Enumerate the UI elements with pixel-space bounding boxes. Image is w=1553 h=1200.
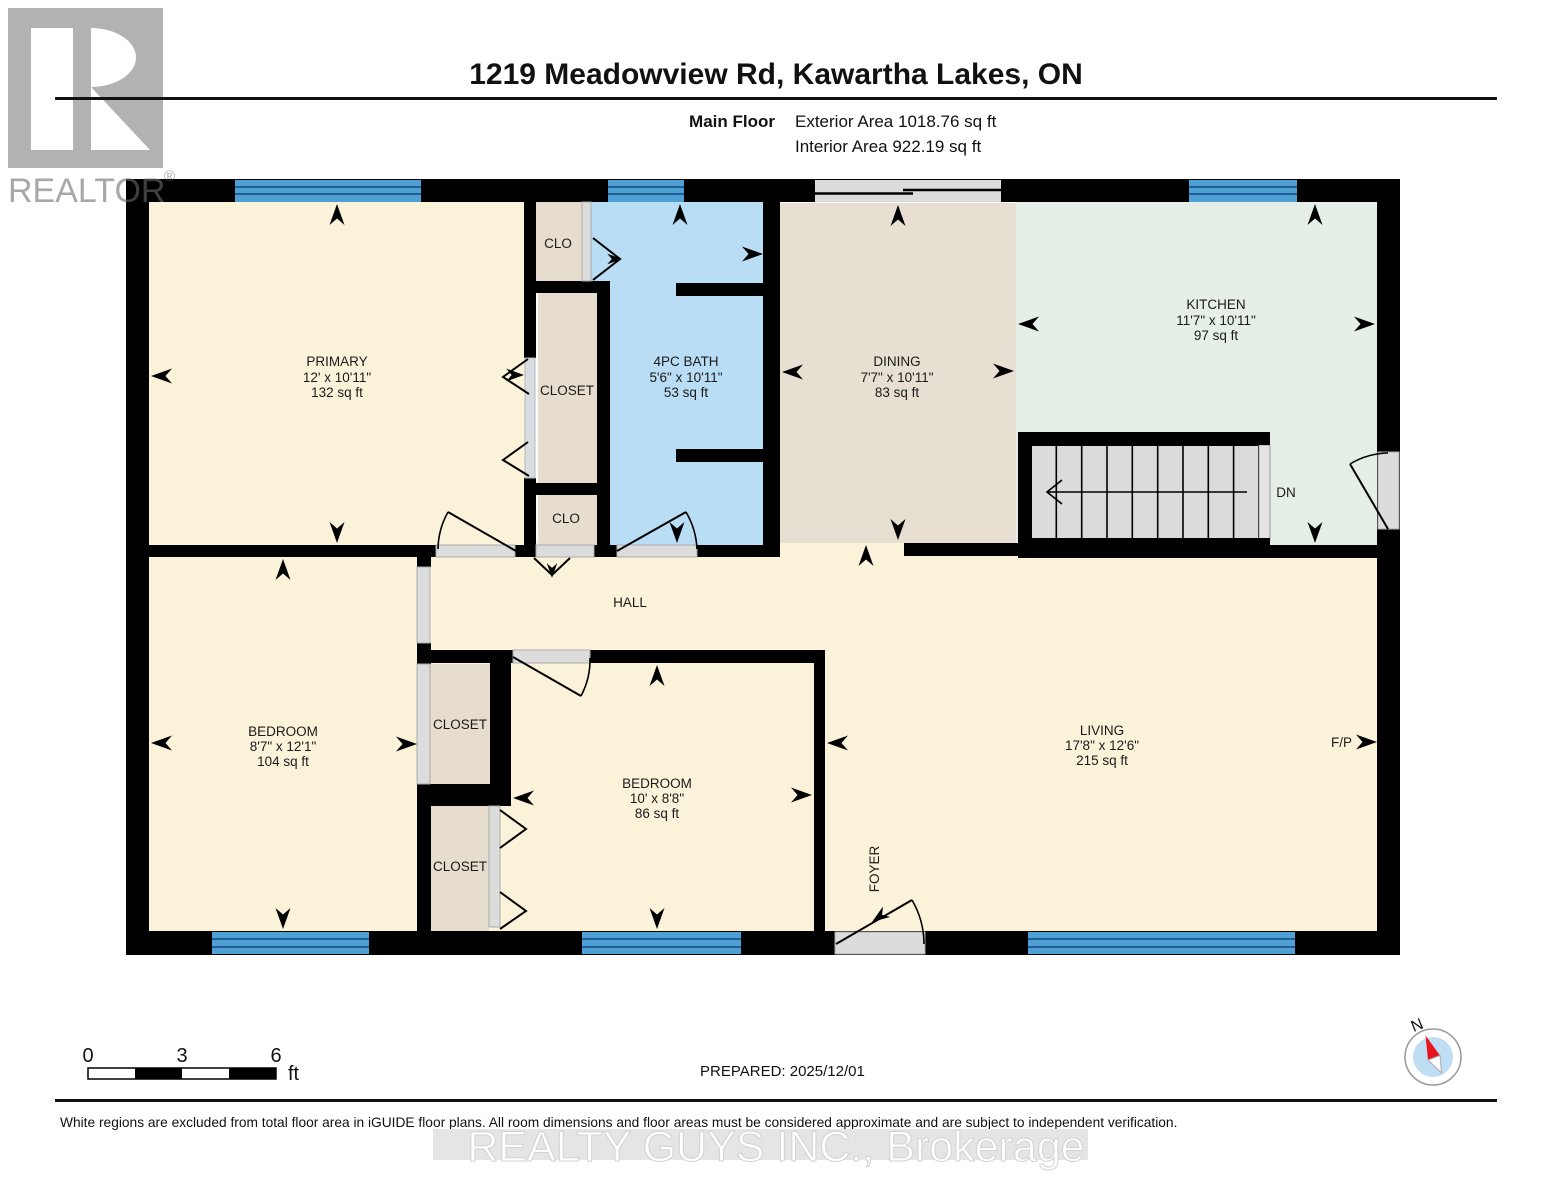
svg-text:86 sq ft: 86 sq ft [635,806,680,821]
svg-text:DINING: DINING [873,354,920,369]
svg-text:KITCHEN: KITCHEN [1186,297,1245,312]
svg-text:BEDROOM: BEDROOM [248,724,318,739]
svg-text:1219 Meadowview Rd, Kawartha L: 1219 Meadowview Rd, Kawartha Lakes, ON [469,58,1083,91]
svg-text:ft: ft [288,1063,300,1085]
svg-text:10' x 8'8": 10' x 8'8" [630,791,684,806]
svg-text:REALTOR: REALTOR [8,172,165,210]
svg-text:CLOSET: CLOSET [433,717,487,732]
svg-text:Main Floor: Main Floor [689,112,775,131]
svg-text:53 sq ft: 53 sq ft [664,385,709,400]
svg-text:215 sq ft: 215 sq ft [1076,753,1128,768]
svg-text:104 sq ft: 104 sq ft [257,754,309,769]
svg-text:LIVING: LIVING [1080,723,1124,738]
svg-text:®: ® [164,168,175,185]
svg-text:REALTY GUYS INC., Brokerage: REALTY GUYS INC., Brokerage [467,1123,1084,1171]
svg-text:132 sq ft: 132 sq ft [311,385,363,400]
svg-text:CLOSET: CLOSET [433,859,487,874]
svg-text:Interior Area 922.19 sq ft: Interior Area 922.19 sq ft [795,137,981,156]
svg-text:5'6" x 10'11": 5'6" x 10'11" [649,370,722,385]
svg-text:FOYER: FOYER [867,846,882,893]
svg-text:3: 3 [176,1045,187,1067]
svg-text:0: 0 [82,1045,93,1067]
svg-text:HALL: HALL [613,595,647,610]
svg-text:F/P: F/P [1331,735,1352,750]
svg-text:17'8" x 12'6": 17'8" x 12'6" [1065,738,1139,753]
svg-text:97 sq ft: 97 sq ft [1194,328,1239,343]
svg-text:PREPARED: 2025/12/01: PREPARED: 2025/12/01 [700,1063,865,1080]
svg-text:CLO: CLO [552,511,580,526]
svg-text:6: 6 [270,1045,281,1067]
svg-text:BEDROOM: BEDROOM [622,776,692,791]
svg-text:Exterior Area 1018.76 sq ft: Exterior Area 1018.76 sq ft [795,112,997,131]
svg-text:12' x 10'11": 12' x 10'11" [303,370,371,385]
svg-text:DN: DN [1276,485,1296,500]
svg-text:83 sq ft: 83 sq ft [875,385,920,400]
svg-text:11'7" x 10'11": 11'7" x 10'11" [1176,313,1256,328]
svg-text:7'7" x 10'11": 7'7" x 10'11" [860,370,933,385]
svg-text:4PC BATH: 4PC BATH [653,354,718,369]
svg-text:CLO: CLO [544,236,572,251]
svg-text:CLOSET: CLOSET [540,383,594,398]
svg-text:8'7" x 12'1": 8'7" x 12'1" [250,739,317,754]
svg-text:PRIMARY: PRIMARY [306,354,367,369]
